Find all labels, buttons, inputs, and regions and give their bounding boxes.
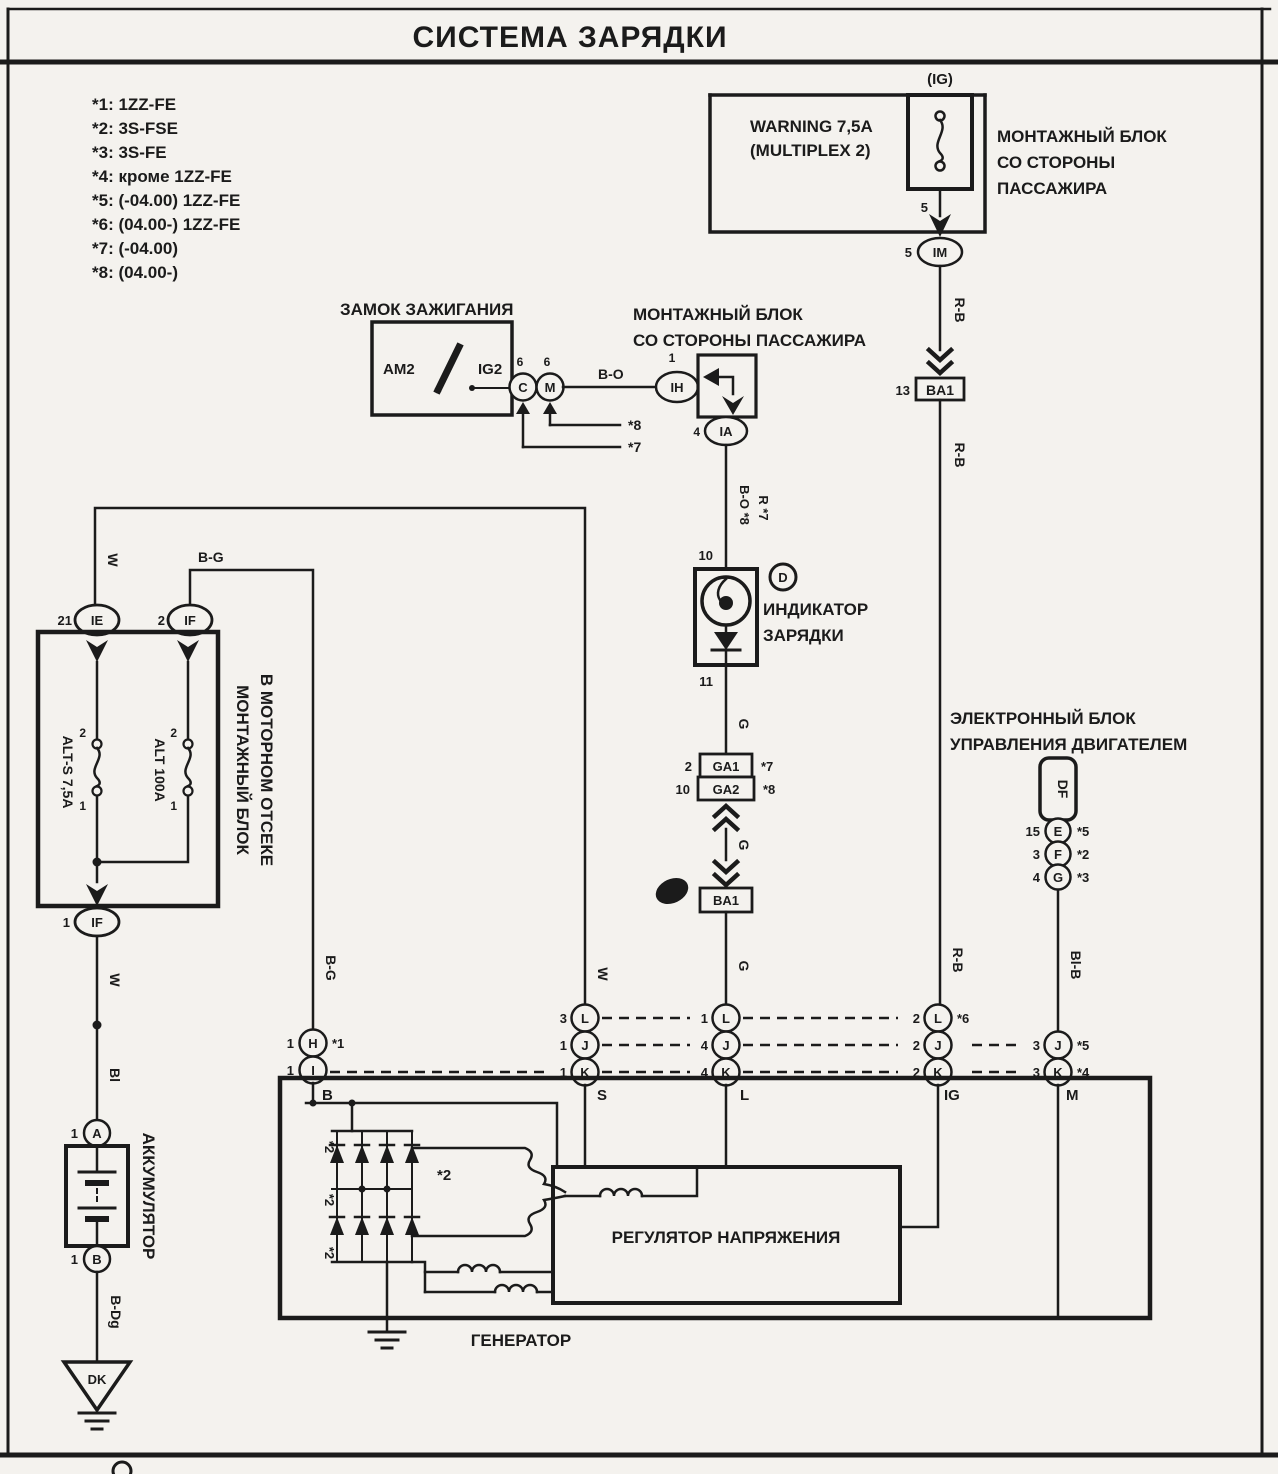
wire-label-bdg: B-Dg	[108, 1295, 124, 1328]
pin-number: 4	[701, 1038, 709, 1053]
arrow-down-icon	[177, 640, 199, 662]
indicator-label: ИНДИКАТОР	[763, 600, 868, 619]
fuse-alt-s: 2 1 ALT-S 7,5A	[60, 662, 102, 882]
arrow-down-icon	[722, 396, 744, 415]
variant-note: *7	[628, 439, 641, 455]
connector-letter: L	[722, 1011, 730, 1026]
arrow-up-icon	[516, 402, 530, 414]
connector-letter: J	[581, 1038, 588, 1053]
ecu-label: УПРАВЛЕНИЯ ДВИГАТЕЛЕМ	[950, 735, 1187, 754]
junction-dot	[93, 858, 102, 867]
pin-number: 1	[287, 1036, 294, 1051]
battery-label: АККУМУЛЯТОР	[139, 1133, 158, 1260]
connector-code: BA1	[926, 382, 954, 398]
page-title: СИСТЕМА ЗАРЯДКИ	[413, 21, 728, 54]
pin-number: 6	[544, 355, 551, 369]
variant-note: *3	[1077, 870, 1089, 885]
connector-letter: L	[581, 1011, 589, 1026]
ecu-label: ЭЛЕКТРОННЫЙ БЛОК	[950, 709, 1136, 728]
terminal-label: S	[597, 1087, 607, 1104]
wiring-diagram-page: СИСТЕМА ЗАРЯДКИ *1: 1ZZ-FE *2: 3S-FSE *3…	[0, 0, 1278, 1474]
pin-number: 4	[693, 425, 700, 439]
block-label-vertical: В МОТОРНОМ ОТСЕКЕ	[257, 674, 276, 866]
ignition-switch: ЗАМОК ЗАЖИГАНИЯ AM2 IG2 C M 6 6 *7 *8 B-…	[340, 300, 656, 455]
ig-tag: (IG)	[927, 71, 953, 88]
terminal-label: IG	[944, 1087, 960, 1104]
double-arrow-down-icon	[715, 862, 737, 885]
pin-number: 3	[1033, 847, 1040, 862]
arrow-down-icon	[86, 884, 108, 906]
connector-letter: M	[545, 380, 556, 395]
block-label: СО СТОРОНЫ	[997, 153, 1115, 172]
field-winding	[412, 1262, 553, 1292]
connector-code: IM	[933, 245, 947, 260]
connector-code: GA2	[713, 782, 740, 797]
fuse-label: ALT 100A	[152, 738, 168, 802]
variant-note: *5	[1077, 824, 1089, 839]
junction-dot	[93, 1021, 102, 1030]
passenger-junction-block-top: (IG) WARNING 7,5A (MULTIPLEX 2) МОНТАЖНЫ…	[710, 71, 1167, 266]
variant-note: *2	[322, 1141, 337, 1153]
legend-item: *7: (-04.00)	[92, 239, 178, 258]
pin-number: 1	[560, 1038, 567, 1053]
variant-note: *2	[437, 1167, 451, 1184]
legend-item: *6: (04.00-) 1ZZ-FE	[92, 215, 240, 234]
legend-item: *3: 3S-FE	[92, 143, 167, 162]
connector-code: IA	[720, 424, 734, 439]
variant-note: *5	[1077, 1038, 1089, 1053]
wire-label-w: W	[595, 967, 611, 981]
ground-code: DK	[88, 1372, 107, 1387]
arrow-up-icon	[543, 402, 557, 414]
warning-fuse-box	[908, 95, 972, 189]
circle-d-letter: D	[778, 570, 787, 585]
connector-letter: H	[308, 1036, 317, 1051]
connector-letter: J	[1054, 1038, 1061, 1053]
battery-branch: W Bl A 1 АККУМУЛЯТОР B 1 B-Dg DK	[64, 936, 158, 1429]
pin-number: 11	[699, 674, 713, 689]
pin-number: 5	[905, 245, 912, 260]
generator-connector-row: H 1 *1 I 1 L 3 J 1 K 1 L 1 J 4 K 4 L 2 *…	[287, 1005, 1090, 1086]
connector-letter: C	[518, 380, 528, 395]
double-arrow-up-icon	[715, 806, 737, 829]
variant-note: *7	[761, 759, 773, 774]
battery-cells-icon	[79, 1146, 115, 1246]
terminal-label: B	[322, 1087, 333, 1104]
fuse-icon	[936, 112, 945, 171]
wire-label-w: W	[105, 553, 121, 567]
pin-number: 1	[79, 799, 86, 813]
passenger-junction-block-mid: МОНТАЖНЫЙ БЛОК СО СТОРОНЫ ПАССАЖИРА 1 IH…	[633, 305, 866, 445]
wire-label-bg: B-G	[323, 955, 339, 981]
terminal-ig2: IG2	[478, 361, 502, 378]
pin-number: 2	[79, 726, 86, 740]
pin-number: 2	[158, 613, 165, 628]
charge-indicator-column: B-O *8 R *7 10 D ИНДИКАТОР ЗАРЯДКИ 11 G	[695, 445, 868, 754]
wire-label-rb: R-B	[950, 948, 966, 973]
generator-block: B S L IG M РЕГУЛЯТОР НАПРЯЖЕНИЯ	[280, 1078, 1150, 1350]
terminal-label: M	[1066, 1087, 1079, 1104]
pin-number: 1	[701, 1011, 708, 1026]
variant-note: *6	[957, 1011, 969, 1026]
variant-note: *2	[322, 1247, 337, 1259]
generator-label: ГЕНЕРАТОР	[471, 1331, 571, 1350]
ink-blot	[652, 873, 693, 909]
wire-label-bl: Bl	[107, 1068, 123, 1082]
fuse-label: (MULTIPLEX 2)	[750, 141, 871, 160]
legend-item: *8: (04.00-)	[92, 263, 178, 282]
connector-letter: E	[1054, 824, 1063, 839]
pin-number: 1	[71, 1252, 78, 1267]
variant-note: *1	[332, 1036, 344, 1051]
pin-number: 13	[896, 383, 910, 398]
pin-number: 2	[170, 726, 177, 740]
switch-lever-icon	[435, 347, 476, 394]
pin-number: 3	[1033, 1038, 1040, 1053]
connector-code: IF	[91, 915, 103, 930]
pin-number: 6	[517, 355, 524, 369]
diode-row-upper	[330, 1145, 419, 1163]
variant-note: *2	[322, 1194, 337, 1206]
pin-number: 1	[63, 915, 70, 930]
pin-number: 10	[676, 782, 690, 797]
legend-item: *4: кроме 1ZZ-FE	[92, 167, 232, 186]
ground-icon	[79, 1413, 115, 1429]
pin-number: 1	[71, 1126, 78, 1141]
ecu-block: ЭЛЕКТРОННЫЙ БЛОК УПРАВЛЕНИЯ ДВИГАТЕЛЕМ D…	[950, 709, 1187, 1032]
pin-number: 4	[1033, 870, 1041, 885]
pin-number: 21	[58, 613, 72, 628]
wire-label-g: G	[736, 719, 752, 730]
connector-letter: A	[92, 1126, 102, 1141]
variant-note: *8	[763, 782, 775, 797]
terminal-am2: AM2	[383, 361, 415, 378]
next-section-partial-circle	[113, 1462, 131, 1474]
variant-note: *2	[1077, 847, 1089, 862]
wire-label-w: W	[107, 973, 123, 987]
pin-number: 3	[560, 1011, 567, 1026]
block-label: МОНТАЖНЫЙ БЛОК	[633, 305, 803, 324]
arrow-down-icon	[86, 640, 108, 662]
block-label: СО СТОРОНЫ ПАССАЖИРА	[633, 331, 866, 350]
block-label-vertical: МОНТАЖНЫЙ БЛОК	[233, 685, 252, 855]
wire-label-blb: Bl-B	[1068, 951, 1084, 980]
wire-label-rb: R-B	[952, 443, 968, 468]
pin-number: 1	[170, 799, 177, 813]
lamp-icon	[702, 577, 750, 625]
fuse-alt-100: 2 1 ALT 100A	[97, 662, 193, 862]
wire-label: R *7	[756, 495, 771, 520]
wire-label-g: G	[736, 840, 752, 851]
legend-item: *2: 3S-FSE	[92, 119, 178, 138]
ground-icon	[369, 1332, 405, 1348]
wire-label-g: G	[736, 961, 752, 972]
diode-icon	[712, 625, 740, 665]
legend-item: *1: 1ZZ-FE	[92, 95, 176, 114]
charging-system-diagram: СИСТЕМА ЗАРЯДКИ *1: 1ZZ-FE *2: 3S-FSE *3…	[0, 0, 1278, 1474]
pin-number: 10	[699, 548, 713, 563]
df-terminal: DF	[1055, 780, 1071, 799]
connector-letter: L	[934, 1011, 942, 1026]
wire-label-bo: B-O	[598, 366, 624, 382]
pin-number: 1	[669, 351, 676, 365]
fuse-label: WARNING 7,5A	[750, 117, 873, 136]
indicator-label: ЗАРЯДКИ	[763, 626, 844, 645]
block-label: ПАССАЖИРА	[997, 179, 1107, 198]
connector-code: IF	[184, 613, 196, 628]
wire-label: B-O *8	[737, 485, 752, 525]
ga-connectors: GA1 2 *7 GA2 10 *8 G BA1 G	[652, 754, 776, 1006]
connector-code: BA1	[713, 893, 739, 908]
pin-number: 5	[921, 200, 928, 215]
connector-letter: J	[722, 1038, 729, 1053]
regulator-label: РЕГУЛЯТОР НАПРЯЖЕНИЯ	[612, 1228, 841, 1247]
legend-item: *5: (-04.00) 1ZZ-FE	[92, 191, 240, 210]
rb-wire-run: R-B BA1 13 R-B R-B	[896, 266, 968, 1006]
legend: *1: 1ZZ-FE *2: 3S-FSE *3: 3S-FE *4: кром…	[92, 95, 240, 282]
pin-number: 2	[913, 1038, 920, 1053]
variant-pointers: *7 *8	[516, 402, 641, 455]
block-label: МОНТАЖНЫЙ БЛОК	[997, 127, 1167, 146]
arrow-left-icon	[703, 368, 719, 386]
left-wiring: W W B-G B-G	[95, 508, 611, 1029]
wire-label-rb: R-B	[952, 298, 968, 323]
pin-number: 2	[685, 759, 692, 774]
connector-code: GA1	[713, 759, 740, 774]
wire-label-bg: B-G	[198, 549, 224, 565]
ignition-title: ЗАМОК ЗАЖИГАНИЯ	[340, 300, 513, 319]
connector-code: IH	[671, 380, 684, 395]
connector-code: IE	[91, 613, 104, 628]
connector-letter: B	[92, 1252, 101, 1267]
variant-note: *8	[628, 417, 641, 433]
terminal-label: L	[740, 1087, 749, 1104]
double-arrow-down-icon	[929, 350, 951, 373]
pin-number: 15	[1026, 824, 1040, 839]
pin-number: 2	[913, 1011, 920, 1026]
connector-letter: G	[1053, 870, 1063, 885]
connector-letter: J	[934, 1038, 941, 1053]
diode-row-lower	[330, 1217, 419, 1235]
fuse-label: ALT-S 7,5A	[60, 736, 76, 809]
connector-letter: F	[1054, 847, 1062, 862]
engine-bay-junction-block: IE 21 IF 2 2 1 ALT-S 7,5A 2 1 ALT 100	[38, 605, 276, 936]
